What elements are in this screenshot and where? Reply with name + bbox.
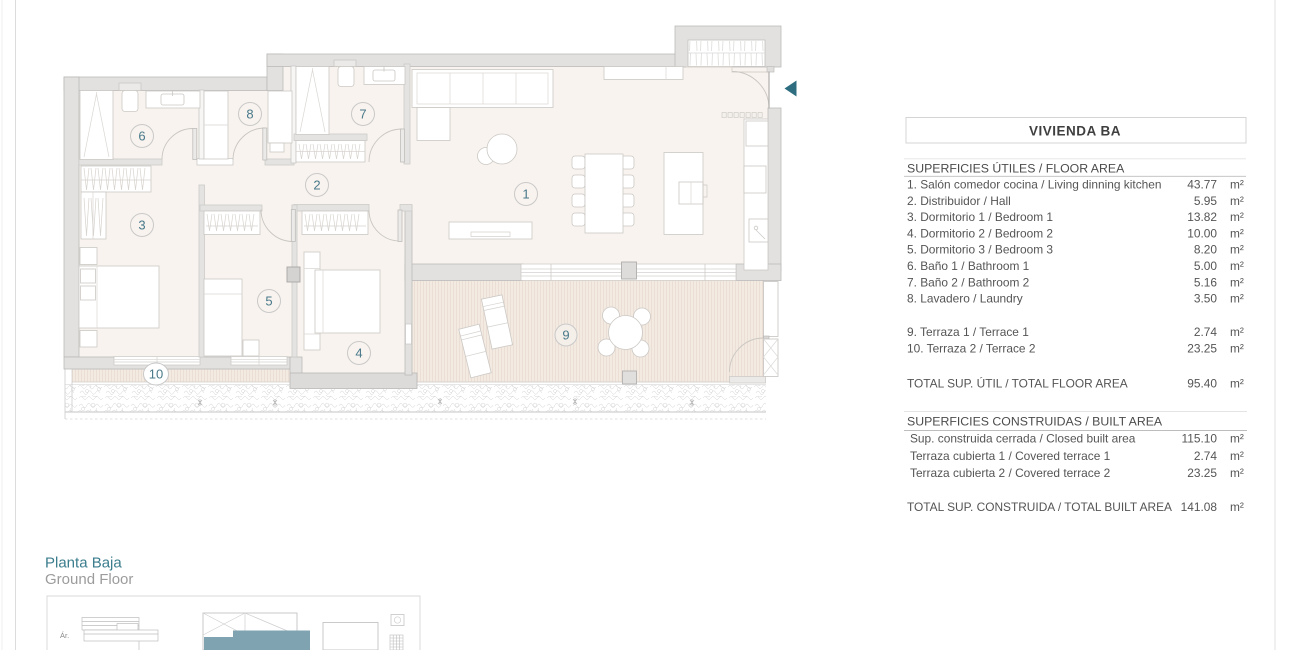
svg-text:141.08: 141.08: [1181, 500, 1218, 514]
svg-text:7: 7: [359, 107, 366, 122]
svg-text:Planta Baja: Planta Baja: [45, 555, 122, 572]
svg-text:2: 2: [313, 178, 320, 193]
svg-text:4: 4: [355, 346, 362, 361]
svg-text:Terraza cubierta 2 / Covered t: Terraza cubierta 2 / Covered terrace 2: [910, 466, 1111, 480]
svg-text:m²: m²: [1230, 325, 1244, 339]
svg-text:m²: m²: [1230, 210, 1244, 224]
svg-text:SUPERFICIES ÚTILES / FLOOR ARE: SUPERFICIES ÚTILES / FLOOR AREA: [907, 161, 1125, 176]
svg-text:m²: m²: [1230, 226, 1244, 240]
svg-text:5.00: 5.00: [1194, 259, 1218, 273]
svg-text:TOTAL SUP. CONSTRUIDA / TOTAL: TOTAL SUP. CONSTRUIDA / TOTAL BUILT AREA: [907, 500, 1172, 514]
svg-text:2.74: 2.74: [1194, 325, 1218, 339]
svg-text:7. Baño 2 / Bathroom 2: 7. Baño 2 / Bathroom 2: [907, 275, 1030, 289]
svg-text:10.00: 10.00: [1187, 226, 1217, 240]
svg-text:115.10: 115.10: [1182, 432, 1218, 446]
svg-text:9: 9: [562, 328, 569, 343]
svg-text:1. Salón comedor cocina / Livi: 1. Salón comedor cocina / Living dinning…: [907, 178, 1161, 192]
svg-text:5.16: 5.16: [1194, 275, 1218, 289]
svg-text:m²: m²: [1230, 259, 1244, 273]
svg-text:Terraza cubierta 1 / Covered t: Terraza cubierta 1 / Covered terrace 1: [910, 449, 1111, 463]
svg-text:5.95: 5.95: [1194, 194, 1218, 208]
svg-text:m²: m²: [1230, 449, 1244, 463]
svg-text:23.25: 23.25: [1187, 466, 1217, 480]
svg-text:m²: m²: [1230, 292, 1244, 306]
svg-text:4. Dormitorio 2 / Bedroom 2: 4. Dormitorio 2 / Bedroom 2: [907, 226, 1053, 240]
svg-text:6: 6: [138, 129, 145, 144]
svg-text:2.74: 2.74: [1194, 449, 1218, 463]
svg-text:5: 5: [265, 294, 272, 309]
svg-text:SUPERFICIES CONSTRUIDAS / BUIL: SUPERFICIES CONSTRUIDAS / BUILT AREA: [907, 415, 1163, 429]
svg-text:13.82: 13.82: [1187, 210, 1217, 224]
svg-text:95.40: 95.40: [1187, 377, 1217, 391]
svg-text:3: 3: [138, 218, 145, 233]
svg-text:1: 1: [522, 187, 529, 202]
svg-text:8. Lavadero / Laundry: 8. Lavadero / Laundry: [907, 292, 1023, 306]
svg-text:Ground Floor: Ground Floor: [45, 571, 133, 588]
svg-text:m²: m²: [1230, 466, 1244, 480]
svg-text:3.50: 3.50: [1194, 292, 1218, 306]
svg-text:2. Distribuidor / Hall: 2. Distribuidor / Hall: [907, 194, 1011, 208]
svg-text:10: 10: [149, 367, 163, 382]
svg-text:6. Baño 1 / Bathroom 1: 6. Baño 1 / Bathroom 1: [907, 259, 1030, 273]
svg-text:m²: m²: [1230, 178, 1244, 192]
svg-text:9. Terraza 1 / Terrace 1: 9. Terraza 1 / Terrace 1: [907, 325, 1029, 339]
svg-text:m²: m²: [1230, 500, 1244, 514]
svg-text:3. Dormitorio 1 / Bedroom 1: 3. Dormitorio 1 / Bedroom 1: [907, 210, 1053, 224]
svg-text:m²: m²: [1230, 377, 1244, 391]
svg-text:8: 8: [246, 107, 253, 122]
svg-text:m²: m²: [1230, 275, 1244, 289]
svg-text:5. Dormitorio 3 / Bedroom 3: 5. Dormitorio 3 / Bedroom 3: [907, 243, 1053, 257]
svg-text:VIVIENDA BA: VIVIENDA BA: [1029, 124, 1121, 139]
svg-text:Sup. construida cerrada / Clos: Sup. construida cerrada / Closed built a…: [910, 432, 1136, 446]
svg-text:Ár.: Ár.: [60, 631, 69, 640]
svg-text:8.20: 8.20: [1194, 243, 1218, 257]
svg-text:23.25: 23.25: [1187, 341, 1217, 355]
svg-text:m²: m²: [1230, 341, 1244, 355]
svg-text:43.77: 43.77: [1187, 178, 1217, 192]
svg-text:TOTAL SUP. ÚTIL / TOTAL FLOOR: TOTAL SUP. ÚTIL / TOTAL FLOOR AREA: [907, 376, 1128, 391]
svg-text:10. Terraza 2 / Terrace 2: 10. Terraza 2 / Terrace 2: [907, 341, 1036, 355]
svg-text:m²: m²: [1230, 194, 1244, 208]
svg-text:m²: m²: [1230, 243, 1244, 257]
svg-text:m²: m²: [1230, 432, 1244, 446]
